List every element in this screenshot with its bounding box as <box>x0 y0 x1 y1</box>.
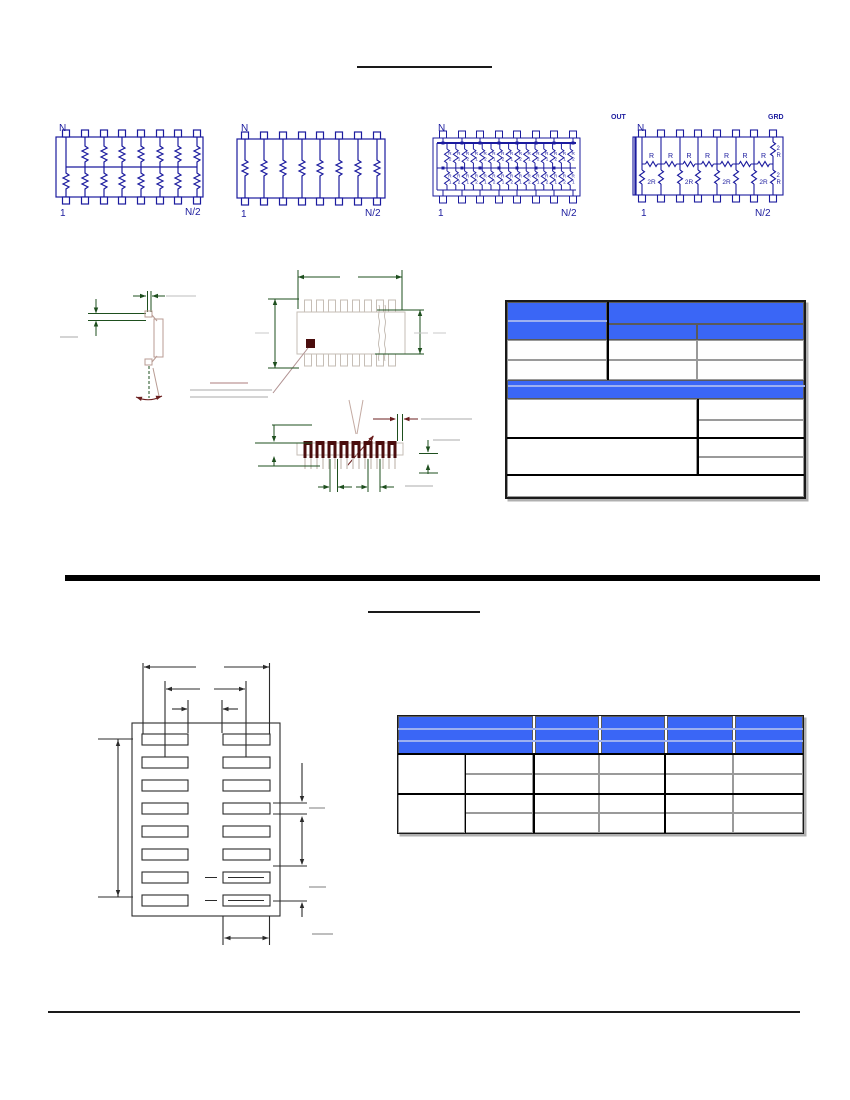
resistor-label: R <box>572 151 576 156</box>
table-cell <box>465 794 533 814</box>
resistor-label: R <box>554 174 558 179</box>
pin-label-1: 1 <box>641 208 647 219</box>
resistor-label: R <box>448 151 452 156</box>
grid-line <box>507 474 804 476</box>
table-header-cell <box>735 716 803 754</box>
resistor-label: 1 <box>528 157 531 162</box>
resistor-label: R <box>554 151 558 156</box>
resistor-label: R <box>563 151 567 156</box>
resistor-label: R <box>448 174 452 179</box>
table-cell <box>733 754 803 774</box>
pin-label-n: N <box>241 123 248 134</box>
side-dim-lines <box>88 291 165 398</box>
resistor-label: R <box>484 174 488 179</box>
lead-stems <box>305 458 395 469</box>
resistor-label: R <box>457 174 461 179</box>
grid-line <box>507 437 804 439</box>
resistor-label: 2 <box>467 157 470 162</box>
resistor-label: R <box>510 174 514 179</box>
pin-label-n: N <box>59 123 66 134</box>
resistor-label: R <box>668 153 673 160</box>
package-dimensions-table <box>505 300 806 499</box>
table-cell <box>733 774 803 794</box>
courtyard-outline <box>132 723 280 916</box>
resistor-label: 1 <box>519 180 522 185</box>
table-header-cell <box>607 302 804 324</box>
resistor-label: 2 <box>449 157 452 162</box>
resistor-label: 1 <box>555 180 558 185</box>
table-header-cell <box>535 716 599 754</box>
resistor-label: R <box>492 151 496 156</box>
pin-label-n: N <box>438 123 445 134</box>
resistor-label: 1 <box>458 157 461 162</box>
resistor-label: R <box>777 153 782 159</box>
resistor-label: 1 <box>572 180 575 185</box>
table-cell <box>733 813 803 833</box>
grid-line <box>607 302 609 380</box>
table-cell <box>607 360 697 380</box>
pin-label-n2: N/2 <box>561 208 577 219</box>
resistor-label: 2R <box>647 179 656 186</box>
resistor-label: 1 <box>484 180 487 185</box>
resistor-label: R <box>475 151 479 156</box>
pin1-marker <box>306 339 315 348</box>
resistor-label: 2 <box>458 180 461 185</box>
pin-label-n2: N/2 <box>185 207 201 218</box>
table-header-cell <box>507 302 607 340</box>
out-label: OUT <box>611 114 627 121</box>
ground-label: GRD <box>768 114 784 121</box>
resistor-label: R <box>536 174 540 179</box>
table-band-row <box>507 380 804 399</box>
table-cell <box>533 754 599 774</box>
resistor-label: R <box>492 174 496 179</box>
resistor-label: 2 <box>572 157 575 162</box>
table-header-cell <box>697 324 804 340</box>
resistor-label: R <box>457 151 461 156</box>
table-cell <box>507 475 804 497</box>
package-top-view <box>255 270 446 466</box>
table-cell <box>697 457 804 475</box>
pin-label-n2: N/2 <box>365 208 381 219</box>
table-cell <box>533 794 599 814</box>
grid-line <box>398 793 803 795</box>
resistor-label: R <box>528 174 532 179</box>
resistor-label: R <box>563 174 567 179</box>
leader-v <box>349 400 363 434</box>
resistor-label: R <box>475 174 479 179</box>
resistor-label: 2 <box>546 180 549 185</box>
table-header-cell <box>398 716 533 754</box>
table-cell <box>697 399 804 420</box>
resistors <box>242 158 380 178</box>
resistor-label: 2 <box>528 180 531 185</box>
resistor-label: 2 <box>511 180 514 185</box>
resistor-label: R <box>761 153 766 160</box>
resistor-label: R <box>528 151 532 156</box>
header-hairline <box>398 740 803 742</box>
table-cell <box>607 340 697 360</box>
resistor-label: R <box>519 151 523 156</box>
grid-line <box>398 753 803 755</box>
pin-label-n: N <box>637 123 644 134</box>
resistor-label: R <box>777 180 782 186</box>
resistor-label: 1 <box>449 180 452 185</box>
resistor-label: 2 <box>777 173 781 179</box>
resistor-label: 2R <box>722 179 731 186</box>
table-cell <box>599 794 665 814</box>
leader-lines <box>60 296 272 397</box>
table-cell <box>697 438 804 458</box>
table-cell <box>465 813 533 833</box>
resistor-label: R <box>742 153 747 160</box>
resistor-label: R <box>536 151 540 156</box>
resistor-label: R <box>501 151 505 156</box>
resistor-label: 2 <box>475 180 478 185</box>
resistor-label: 2 <box>563 180 566 185</box>
resistor-label: R <box>501 174 505 179</box>
resistor-label: R <box>705 153 710 160</box>
table-cell <box>665 774 734 794</box>
table-cell <box>599 813 665 833</box>
table-cell <box>665 813 734 833</box>
table-cell <box>533 774 599 794</box>
table-cell <box>465 754 533 774</box>
resistor-label: R <box>649 153 654 160</box>
land-pattern-dims <box>98 663 307 945</box>
header-hairline <box>398 728 803 730</box>
package-side-view <box>60 291 272 401</box>
schematic-r2r-ladder: R R R R R R R 2R 2R 2R 2R 2 R 2 R OUT GR… <box>611 114 784 219</box>
schematic-isolated: N 1 N/2 <box>237 123 385 220</box>
body-outline <box>297 443 403 455</box>
resistor-label: 1 <box>493 157 496 162</box>
resistor-label: 2 <box>484 157 487 162</box>
table-cell <box>697 360 804 380</box>
resistor-label: 1 <box>467 180 470 185</box>
resistor-label: 1 <box>537 180 540 185</box>
resistor-label: R <box>572 174 576 179</box>
resistor-label: 2 <box>493 180 496 185</box>
leader-lines <box>309 808 333 934</box>
table-cell <box>599 774 665 794</box>
schematic-body <box>433 138 580 196</box>
resistor-label: R <box>724 153 729 160</box>
resistor-label: 1 <box>546 157 549 162</box>
table-cell <box>465 774 533 794</box>
resistor-label: 2 <box>555 157 558 162</box>
table-cell <box>665 794 734 814</box>
resistor-label: R <box>519 174 523 179</box>
table-cell <box>599 754 665 774</box>
resistor-label: 2 <box>502 157 505 162</box>
table-cell <box>398 794 465 834</box>
table-header-cell <box>667 716 734 754</box>
wire-stubs <box>642 137 773 195</box>
package-end-view <box>255 414 472 492</box>
table-cell <box>507 399 697 438</box>
vector-drawings: N 1 N/2 N 1 N/2 <box>0 0 850 1100</box>
schematic-bussed: N 1 N/2 <box>56 123 203 219</box>
schematic-dual-terminator: R2 R1 R2 R1 R2 R1 R2 R1 R2 R1 R2 R1 R2 R… <box>433 123 580 219</box>
pad-centerlines <box>205 878 264 901</box>
resistor-label: 2R <box>759 179 768 186</box>
resistor-label: R <box>466 174 470 179</box>
resistor-label: R <box>484 151 488 156</box>
table-cell <box>665 754 734 774</box>
pin-label-n2: N/2 <box>755 208 771 219</box>
table-cell <box>507 438 697 476</box>
table-cell <box>507 360 607 380</box>
table-cell <box>398 754 465 794</box>
resistors <box>640 142 776 184</box>
pads <box>142 734 270 906</box>
resistor-label: 1 <box>563 157 566 162</box>
pin-label-1: 1 <box>438 208 444 219</box>
schematic-body <box>237 139 385 198</box>
end-view-maroon-dims <box>373 417 418 421</box>
resistor-label: R <box>686 153 691 160</box>
resistor-label: R <box>545 151 549 156</box>
resistor-label: R <box>545 174 549 179</box>
pin-label-1: 1 <box>241 209 247 220</box>
pin1-leader <box>273 348 308 393</box>
resistor-label: R <box>466 151 470 156</box>
resistor-label: 1 <box>502 180 505 185</box>
package-profile <box>145 311 163 396</box>
resistor-label: 2R <box>685 179 694 186</box>
table-cell <box>697 420 804 438</box>
resistor-label: 2 <box>537 157 540 162</box>
table-header-cell <box>601 716 665 754</box>
table-cell <box>533 813 599 833</box>
pin-label-1: 1 <box>60 208 66 219</box>
pins <box>440 131 577 203</box>
resistor-label: 2 <box>777 146 781 152</box>
table-cell <box>697 340 804 360</box>
top-view-dims <box>268 270 424 368</box>
table-cell <box>733 794 803 814</box>
land-pattern-drawing <box>98 663 333 945</box>
table-header-cell <box>607 324 697 340</box>
datasheet-page: N 1 N/2 N 1 N/2 <box>0 0 850 1100</box>
pins <box>639 130 777 202</box>
leader-lines <box>405 419 472 486</box>
land-pattern-dimensions-table <box>397 715 804 834</box>
resistor-label: R <box>510 151 514 156</box>
resistor-label: 1 <box>475 157 478 162</box>
resistor-label: 2 <box>519 157 522 162</box>
table-cell <box>507 340 607 360</box>
resistor-label: 1 <box>511 157 514 162</box>
